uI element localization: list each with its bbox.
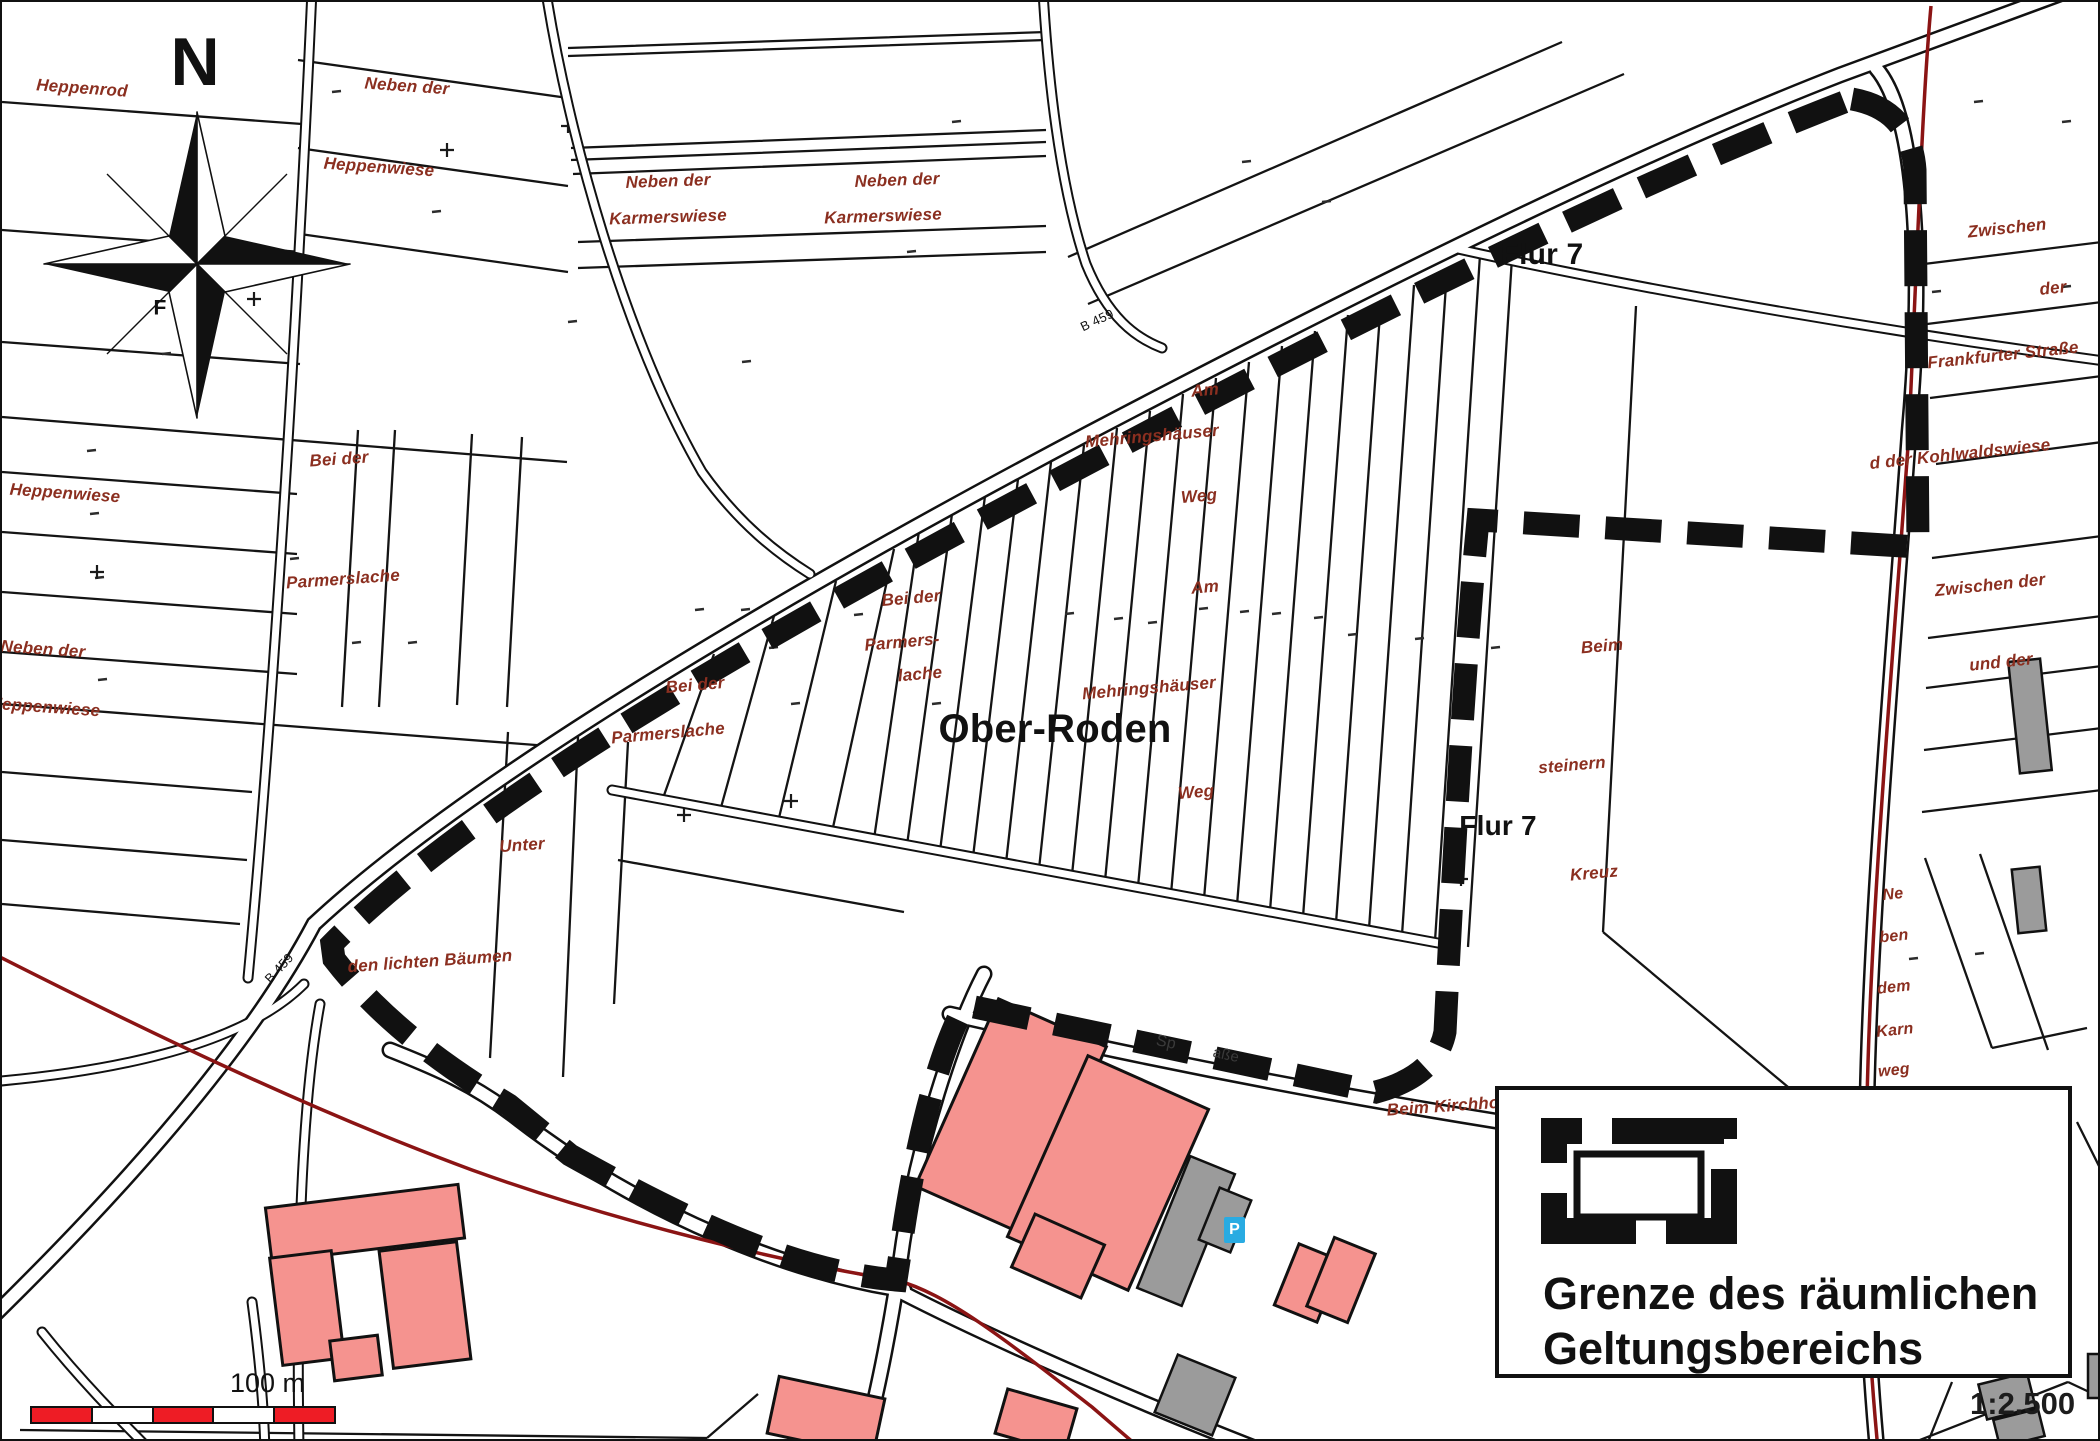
map-label: Parmerslache: [286, 567, 401, 592]
street-name-fragment: Sp: [1155, 1033, 1178, 1053]
map-label: Bei der: [881, 587, 941, 609]
map-canvas: HeppenrodNeben derHeppenwieseNeben derKa…: [0, 0, 2100, 1441]
legend-boundary-symbol: [1529, 1108, 1759, 1258]
map-label: Heppenrod: [36, 76, 128, 99]
map-label: Weg: [1177, 782, 1215, 802]
map-label: Bei der: [665, 674, 725, 696]
map-label: Karmerswiese: [824, 205, 942, 226]
map-label: Mehringshäuser: [1081, 674, 1216, 703]
map-label: der: [2039, 278, 2068, 298]
map-label: d der Kohlwaldswiese: [1869, 436, 2051, 472]
scale-bar-segment: [91, 1408, 152, 1422]
scale-bar-segment: [212, 1408, 273, 1422]
map-label: dem: [1877, 978, 1912, 997]
map-label: steinern: [1538, 754, 1607, 777]
legend-line-2: Geltungsbereichs: [1543, 1321, 2038, 1376]
map-label: und der: [1968, 650, 2033, 674]
map-label: Neben der: [0, 638, 86, 661]
map-label: Neben der: [854, 170, 939, 190]
map-label: Parmerslache: [611, 720, 726, 747]
scale-bar-segment: [273, 1408, 334, 1422]
street-name-fragment: aße: [1212, 1045, 1241, 1065]
map-label: Ne: [1882, 886, 1904, 904]
map-label: Beim: [1580, 636, 1624, 657]
map-label: Karmerswiese: [609, 206, 727, 227]
map-label: Heppenwiese: [9, 481, 121, 506]
legend-text: Grenze des räumlichen Geltungsbereichs: [1543, 1266, 2038, 1376]
map-label: Weg: [1180, 486, 1218, 506]
map-label: Unter: [499, 835, 545, 855]
map-label: Am: [1190, 380, 1219, 399]
scale-bar-segment: [152, 1408, 213, 1422]
map-label: Karn: [1876, 1021, 1915, 1041]
map-scale-ratio: 1:2.500: [1970, 1386, 2075, 1422]
map-label: Heppenwiese: [0, 695, 101, 720]
road-number: B 459: [1078, 307, 1115, 334]
map-label: Neben der: [625, 171, 710, 191]
map-label: F: [153, 298, 166, 319]
map-label: Mehringshäuser: [1084, 422, 1219, 451]
road-number: B 459: [262, 951, 295, 985]
legend-line-1: Grenze des räumlichen: [1543, 1266, 2038, 1321]
map-label: den lichten Bäumen: [347, 947, 513, 975]
map-label: Bei der: [309, 448, 369, 469]
compass-north-label: N: [170, 23, 219, 101]
map-label: lache: [897, 664, 943, 685]
scale-bar-label: 100 m: [230, 1368, 305, 1399]
map-label: Kreuz: [1569, 862, 1619, 883]
flur-label-top: Flur 7: [1501, 240, 1584, 270]
scale-bar-segment: [32, 1408, 91, 1422]
map-label: weg: [1877, 1061, 1910, 1080]
map-label: Beim Kirchhof: [1386, 1093, 1506, 1118]
map-label: ben: [1879, 928, 1910, 947]
place-name: Ober-Roden: [938, 709, 1171, 749]
map-label: Heppenwiese: [323, 155, 435, 180]
map-label: Zwischen: [1967, 215, 2047, 240]
flur-label-mid: Flur 7: [1459, 812, 1536, 840]
map-label: Zwischen der: [1934, 571, 2046, 600]
map-label: Parmers-: [864, 630, 941, 653]
scale-bar: [30, 1406, 336, 1424]
map-label: Neben der: [364, 75, 450, 98]
parking-icon: P: [1224, 1217, 1245, 1243]
map-label: Frankfurter Straße: [1927, 339, 2080, 372]
legend-box: Grenze des räumlichen Geltungsbereichs: [1495, 1086, 2072, 1378]
map-label: Am: [1190, 577, 1219, 596]
